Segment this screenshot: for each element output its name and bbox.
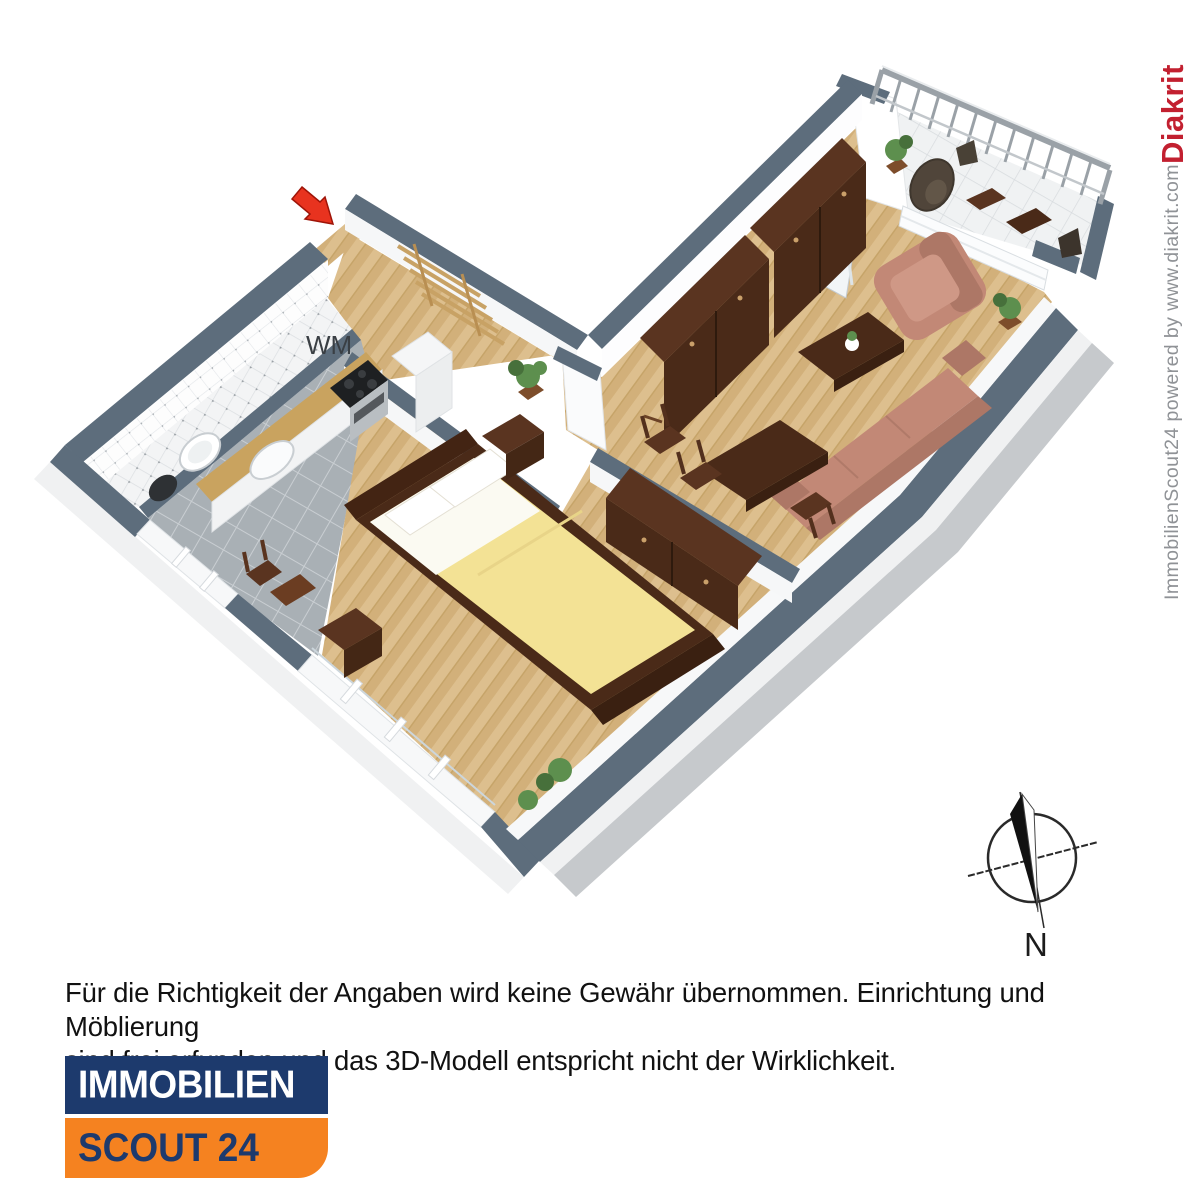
attribution: ImmobilienScout24 powered by www.diakrit… (1157, 55, 1188, 600)
powered-by-text: ImmobilienScout24 powered by www.diakrit… (1163, 164, 1183, 600)
immobilienscout24-logo: IMMOBILIEN SCOUT 24 (65, 1056, 328, 1178)
compass-icon: N (958, 780, 1114, 966)
page: { "floorplan": { "labels": { "washing_ma… (0, 0, 1200, 1200)
entrance-arrow-icon (292, 187, 333, 224)
disclaimer-line1: Für die Richtigkeit der Angaben wird kei… (65, 976, 1150, 1044)
plant (508, 360, 547, 400)
compass-north-label: N (1024, 926, 1048, 963)
logo-top-text: IMMOBILIEN (65, 1063, 295, 1107)
compass: N (958, 780, 1114, 966)
logo-bottom-bar: SCOUT 24 (65, 1118, 328, 1178)
logo-top-bar: IMMOBILIEN (65, 1056, 328, 1114)
logo-bottom-text: SCOUT 24 (65, 1125, 259, 1170)
diakrit-brand: Diakrit (1157, 64, 1188, 164)
washing-machine-label: WM (306, 330, 352, 360)
